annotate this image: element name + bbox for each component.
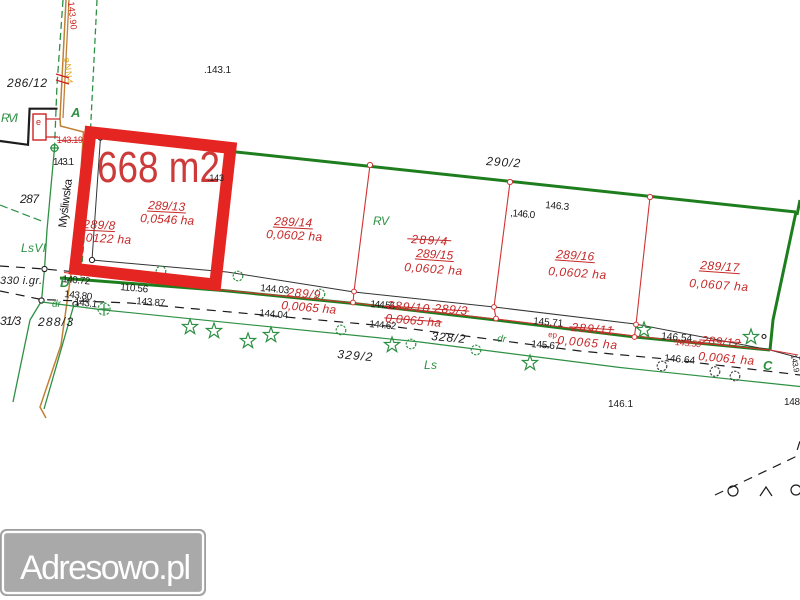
svg-text:.143: .143 <box>207 173 224 183</box>
svg-text:146.3: 146.3 <box>545 200 570 213</box>
svg-text:668 m2: 668 m2 <box>97 143 220 192</box>
svg-text:0,0602 ha: 0,0602 ha <box>266 227 323 244</box>
svg-text:148: 148 <box>784 397 800 408</box>
svg-text:RV: RV <box>373 214 390 228</box>
svg-text:146.1: 146.1 <box>608 399 633 410</box>
svg-text:330 i.gr.: 330 i.gr. <box>0 275 42 287</box>
svg-text:288/3: 288/3 <box>37 315 73 329</box>
svg-text:Adresowo.pl: Adresowo.pl <box>20 549 191 587</box>
svg-text:LsVI: LsVI <box>21 241 47 255</box>
svg-text:RVI: RVI <box>1 111 19 125</box>
svg-text:143.19: 143.19 <box>57 135 83 145</box>
svg-text:A: A <box>70 105 80 120</box>
svg-text:328/2: 328/2 <box>431 329 466 346</box>
svg-text:C: C <box>763 358 773 373</box>
svg-text:.143.1: .143.1 <box>204 65 231 76</box>
svg-text:dr: dr <box>52 299 62 310</box>
svg-text:287: 287 <box>19 192 40 206</box>
svg-text:0,0546 ha: 0,0546 ha <box>140 211 195 228</box>
svg-text:290/2: 290/2 <box>485 154 521 170</box>
svg-text:31/3: 31/3 <box>0 314 21 328</box>
svg-text:dr: dr <box>497 334 507 346</box>
svg-text:,146.0: ,146.0 <box>510 208 536 221</box>
svg-text:143.1: 143.1 <box>53 157 74 168</box>
svg-text:ep: ep <box>548 330 558 340</box>
svg-text:286/12: 286/12 <box>6 76 47 90</box>
svg-text:Ls: Ls <box>424 358 437 372</box>
svg-text:e: e <box>36 117 41 127</box>
